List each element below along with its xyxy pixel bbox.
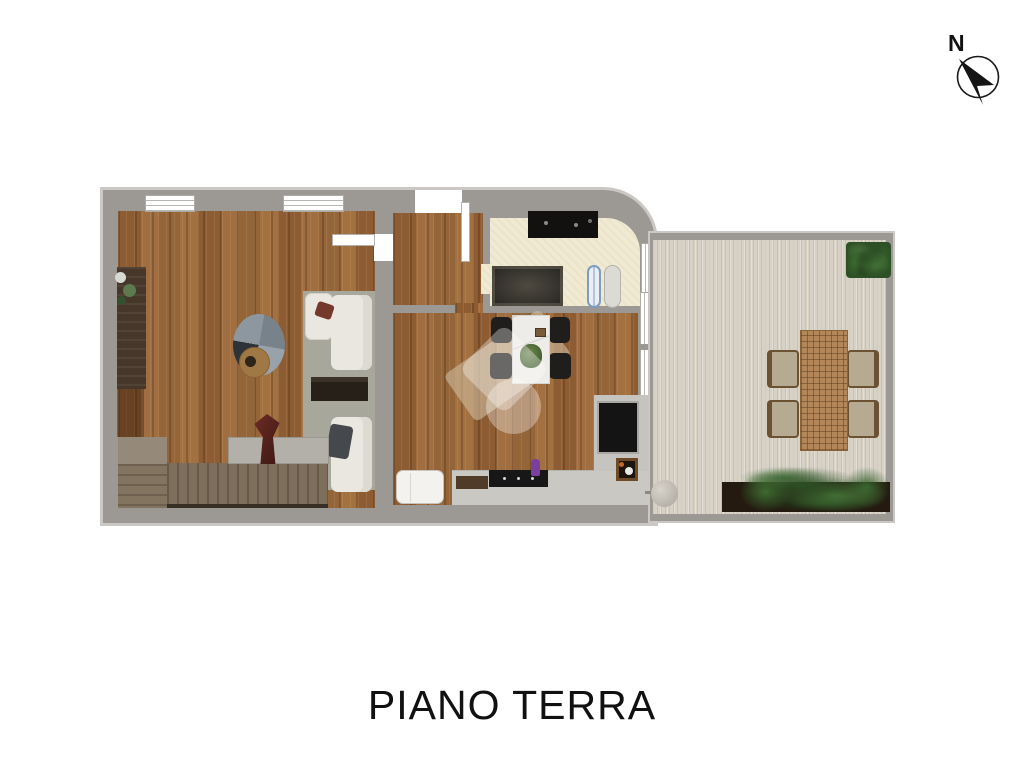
- dining-chair: [549, 317, 570, 343]
- living-room-window-right: [283, 195, 344, 212]
- outdoor-chair: [767, 400, 799, 438]
- dining-chair: [490, 353, 512, 379]
- bathroom-door-opening: [481, 264, 492, 294]
- sink-basin: [616, 458, 638, 481]
- surfboard-white: [604, 265, 621, 308]
- surfboard-blue: [587, 265, 601, 308]
- console-table: [228, 437, 329, 464]
- staircase-run: [167, 463, 328, 508]
- living-hall-door-leaf: [332, 234, 375, 246]
- living-hall-opening: [374, 234, 393, 261]
- bath-vanity: [528, 211, 598, 238]
- floor-shadow: [117, 389, 144, 437]
- sofa-top: [331, 295, 372, 370]
- washing-machine: [396, 470, 444, 504]
- entrance-door-leaf: [461, 202, 470, 262]
- outdoor-dining-table: [800, 330, 848, 451]
- outdoor-chair: [847, 400, 879, 438]
- ornate-rug: [492, 266, 563, 306]
- outdoor-chair: [847, 350, 879, 388]
- stool-center: [245, 356, 256, 367]
- north-arrow-icon: [953, 52, 1003, 110]
- purple-bottle: [531, 459, 540, 476]
- floor-plan-canvas: N: [0, 0, 1024, 768]
- table-decor: [535, 328, 546, 337]
- fridge: [597, 401, 639, 454]
- dining-chair: [549, 353, 571, 379]
- living-room-window-left: [145, 195, 195, 212]
- stair-landing: [118, 437, 167, 464]
- terrace-planter-top: [846, 242, 891, 278]
- coffee-table: [311, 377, 368, 401]
- table-plant-icon: [520, 344, 542, 368]
- cutting-board: [456, 476, 488, 489]
- garden-pot: [651, 480, 678, 507]
- entrance-opening: [415, 190, 462, 213]
- outdoor-chair: [767, 350, 799, 388]
- plant-decor-icon: [115, 272, 149, 312]
- floor-title: PIANO TERRA: [0, 682, 1024, 729]
- dining-chair: [491, 317, 512, 343]
- hedge: [738, 466, 891, 513]
- staircase-lower: [118, 464, 167, 508]
